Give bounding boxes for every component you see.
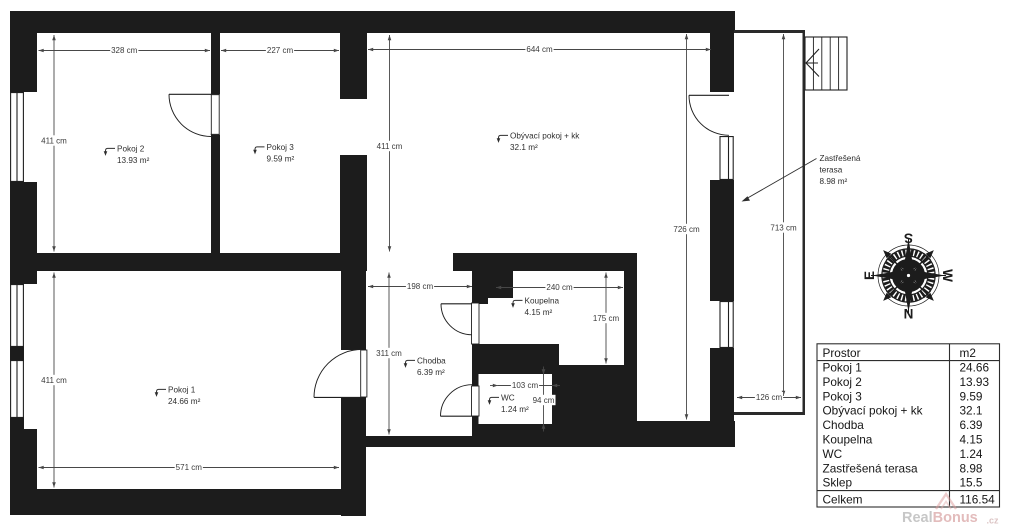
svg-text:24.66 m²: 24.66 m² bbox=[168, 397, 201, 406]
svg-text:Pokoj 3: Pokoj 3 bbox=[267, 143, 295, 152]
svg-text:Koupelna: Koupelna bbox=[823, 433, 873, 447]
svg-text:13.93 m²: 13.93 m² bbox=[117, 156, 150, 165]
svg-text:103 cm: 103 cm bbox=[512, 381, 539, 390]
svg-text:1.24 m²: 1.24 m² bbox=[501, 405, 529, 414]
svg-text:411 cm: 411 cm bbox=[41, 376, 67, 385]
svg-text:6.39: 6.39 bbox=[960, 418, 983, 432]
svg-text:116.54: 116.54 bbox=[960, 493, 996, 507]
svg-text:175 cm: 175 cm bbox=[593, 314, 620, 323]
svg-text:W: W bbox=[940, 269, 955, 282]
svg-text:terasa: terasa bbox=[820, 165, 843, 174]
svg-text:Zastřešená: Zastřešená bbox=[820, 154, 861, 163]
svg-text:WC: WC bbox=[823, 447, 843, 461]
svg-text:Obývací pokoj + kk: Obývací pokoj + kk bbox=[823, 404, 923, 418]
svg-text:6.39 m²: 6.39 m² bbox=[417, 368, 445, 377]
svg-text:4.15 m²: 4.15 m² bbox=[525, 308, 553, 317]
svg-text:1.24: 1.24 bbox=[960, 447, 983, 461]
svg-text:Chodba: Chodba bbox=[823, 418, 865, 432]
svg-text:Chodba: Chodba bbox=[417, 357, 446, 366]
svg-text:m2: m2 bbox=[960, 346, 976, 360]
svg-text:Celkem: Celkem bbox=[823, 493, 863, 507]
svg-text:15.5: 15.5 bbox=[960, 476, 983, 490]
svg-text:9.59 m²: 9.59 m² bbox=[267, 154, 295, 163]
svg-text:644 cm: 644 cm bbox=[526, 45, 553, 54]
svg-text:8.98: 8.98 bbox=[960, 461, 983, 475]
svg-text:126 cm: 126 cm bbox=[756, 393, 783, 402]
svg-text:N: N bbox=[904, 306, 914, 321]
svg-text:S: S bbox=[904, 231, 913, 246]
svg-text:Pokoj 2: Pokoj 2 bbox=[823, 375, 862, 389]
svg-text:Obývací pokoj + kk: Obývací pokoj + kk bbox=[510, 132, 580, 141]
svg-text:32.1 m²: 32.1 m² bbox=[510, 143, 538, 152]
svg-text:13.93: 13.93 bbox=[960, 375, 990, 389]
svg-text:713 cm: 713 cm bbox=[770, 224, 797, 233]
svg-text:WC: WC bbox=[501, 394, 515, 403]
svg-text:328 cm: 328 cm bbox=[111, 46, 138, 55]
svg-text:411 cm: 411 cm bbox=[41, 137, 67, 146]
svg-text:32.1: 32.1 bbox=[960, 404, 983, 418]
svg-text:Koupelna: Koupelna bbox=[525, 297, 560, 306]
svg-text:24.66: 24.66 bbox=[960, 361, 990, 375]
svg-text:Sklep: Sklep bbox=[823, 476, 853, 490]
svg-text:Pokoj 3: Pokoj 3 bbox=[823, 389, 863, 403]
svg-text:Pokoj 1: Pokoj 1 bbox=[168, 386, 196, 395]
svg-text:411 cm: 411 cm bbox=[377, 142, 403, 151]
svg-text:8.98 m²: 8.98 m² bbox=[820, 177, 848, 186]
svg-text:Pokoj 1: Pokoj 1 bbox=[823, 361, 862, 375]
svg-text:240 cm: 240 cm bbox=[546, 283, 573, 292]
svg-text:Zastřešená terasa: Zastřešená terasa bbox=[823, 461, 919, 475]
svg-text:227 cm: 227 cm bbox=[267, 46, 294, 55]
svg-text:9.59: 9.59 bbox=[960, 389, 983, 403]
svg-text:.cz: .cz bbox=[987, 516, 1000, 526]
svg-text:726 cm: 726 cm bbox=[673, 225, 700, 234]
svg-text:E: E bbox=[862, 271, 877, 280]
svg-text:198 cm: 198 cm bbox=[407, 282, 434, 291]
svg-text:RealBonus: RealBonus bbox=[902, 510, 978, 526]
svg-text:94 cm: 94 cm bbox=[533, 396, 555, 405]
svg-text:Prostor: Prostor bbox=[823, 346, 861, 360]
svg-text:311 cm: 311 cm bbox=[376, 349, 402, 358]
svg-text:571 cm: 571 cm bbox=[176, 463, 203, 472]
svg-text:Pokoj 2: Pokoj 2 bbox=[117, 145, 145, 154]
svg-text:4.15: 4.15 bbox=[960, 433, 983, 447]
